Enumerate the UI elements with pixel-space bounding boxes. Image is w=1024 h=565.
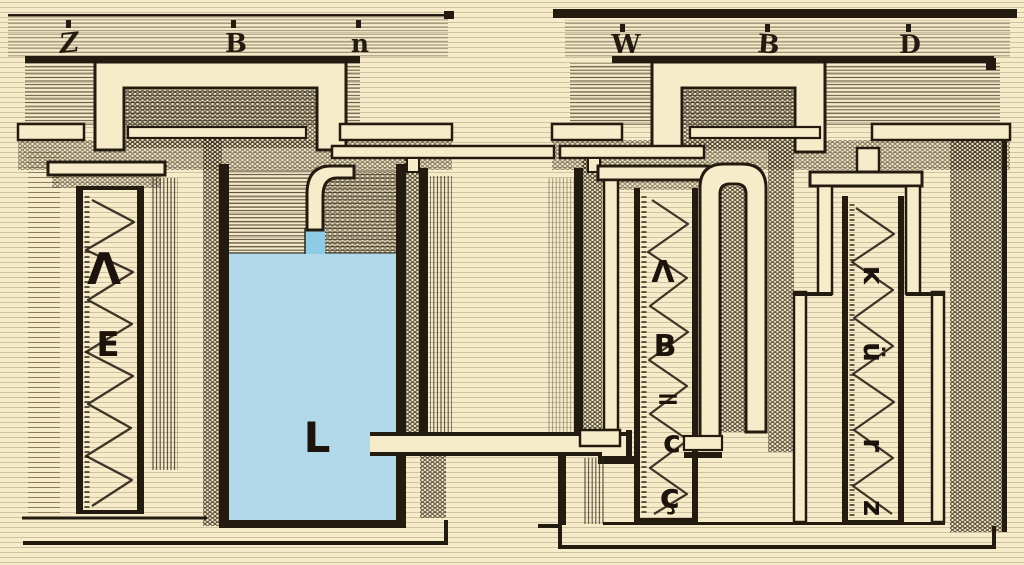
right-beam-label-3: D [899,30,921,59]
right-beam-label-2: B [757,29,781,60]
right-cylinder-glyph-2: ü [857,342,890,362]
right-cylinder-glyph-4: z [857,500,890,516]
right-cylinder-glyph-3: r [857,438,890,452]
left-cylinder-label-2: E [96,325,119,365]
engraving-diagram: Z B n W B D [0,0,1024,565]
right-cylinder-glyph-1: ĸ [857,266,890,286]
center-cylinder-label-2: B [654,329,677,364]
reservoir-label: L [304,413,331,462]
reservoir-liquid [229,253,396,520]
left-cylinder-label-1: Λ [87,244,121,295]
left-beam-label-2: B [225,29,247,59]
center-cylinder-label-4: c [663,425,681,460]
diagram-canvas: Z B n W B D [0,0,1024,565]
reservoir-inlet-stub [305,228,325,254]
center-cylinder-label-1: Λ [651,255,675,290]
right-beam-label-1: W [610,30,641,60]
u-pipe [684,150,794,458]
center-cylinder-label-3: = [656,382,679,415]
center-cylinder-label-5: ç [660,477,680,517]
left-beam-label-3: n [351,29,369,58]
